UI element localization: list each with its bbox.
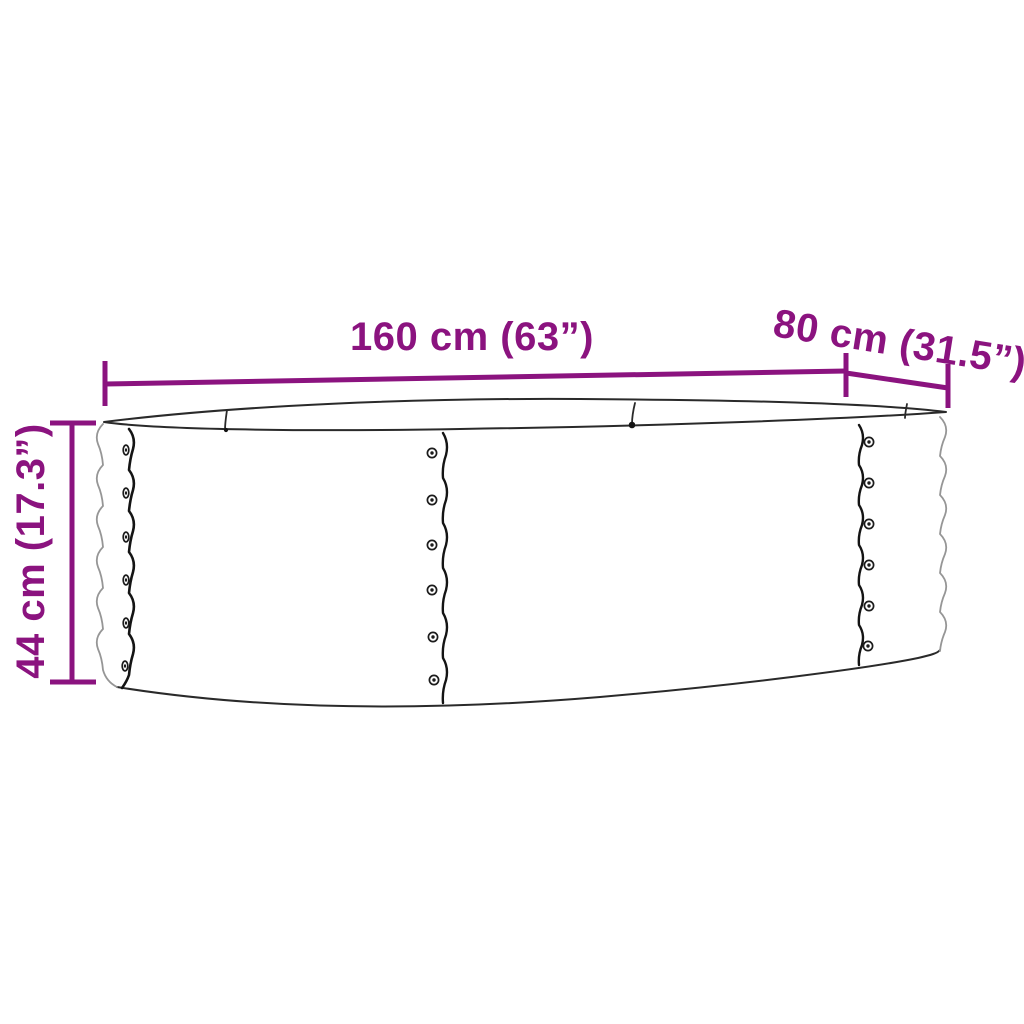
dimension-length-line [105,371,846,384]
rivet-row-left [122,445,129,671]
dimension-length: 160 cm (63”) [105,315,846,406]
planter-right-corrugated-edge [940,417,946,651]
dimension-depth-line [846,373,948,388]
product-dimension-diagram: 160 cm (63”) 80 cm (31.5”) 44 cm (17.3”) [0,0,1024,1024]
planter-left-corrugated-edge [97,424,117,687]
rivet-row-right [863,437,873,650]
planter-left-seam [122,429,134,688]
rivet-row-middle [427,448,438,684]
dimension-depth: 80 cm (31.5”) [770,301,1024,408]
planter-middle-seam [443,433,447,703]
planter-illustration [97,399,946,707]
dimension-height: 44 cm (17.3”) [9,423,96,682]
dimension-diagram-page: 160 cm (63”) 80 cm (31.5”) 44 cm (17.3”) [0,0,1024,1024]
planter-top-rim [104,399,946,430]
height-dimension-label: 44 cm (17.3”) [9,423,53,679]
length-dimension-label: 160 cm (63”) [350,315,594,359]
planter-right-seam [859,425,863,665]
planter-bottom-edge [117,650,940,707]
